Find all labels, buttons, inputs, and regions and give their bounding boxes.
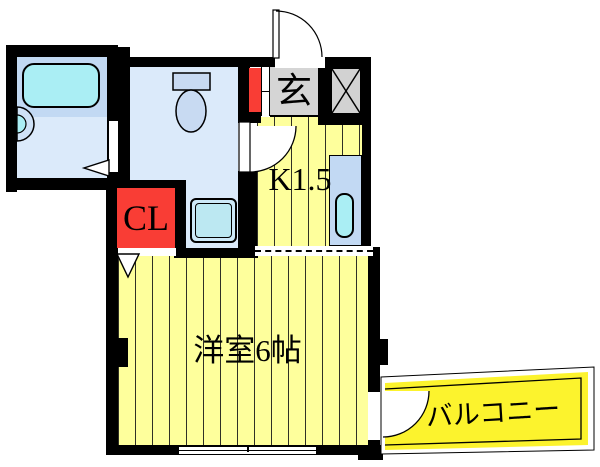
entrance-door-leaf	[273, 10, 279, 58]
floor-plan: 玄 K1.5 CL 洋室6帖 バルコニー	[0, 0, 600, 467]
kitchen-label: K1.5	[258, 162, 342, 196]
kitchen-door-leaf	[239, 122, 250, 172]
main-room-label: 洋室6帖	[140, 332, 355, 368]
entrance-label: 玄	[270, 67, 318, 115]
bathroom-door-arrow	[84, 160, 109, 176]
closet-door-mark	[117, 254, 139, 277]
toilet-bowl	[176, 90, 206, 132]
closet-label: CL	[117, 188, 175, 248]
entrance-door-arc	[276, 11, 322, 57]
toilet-tank	[173, 73, 210, 90]
